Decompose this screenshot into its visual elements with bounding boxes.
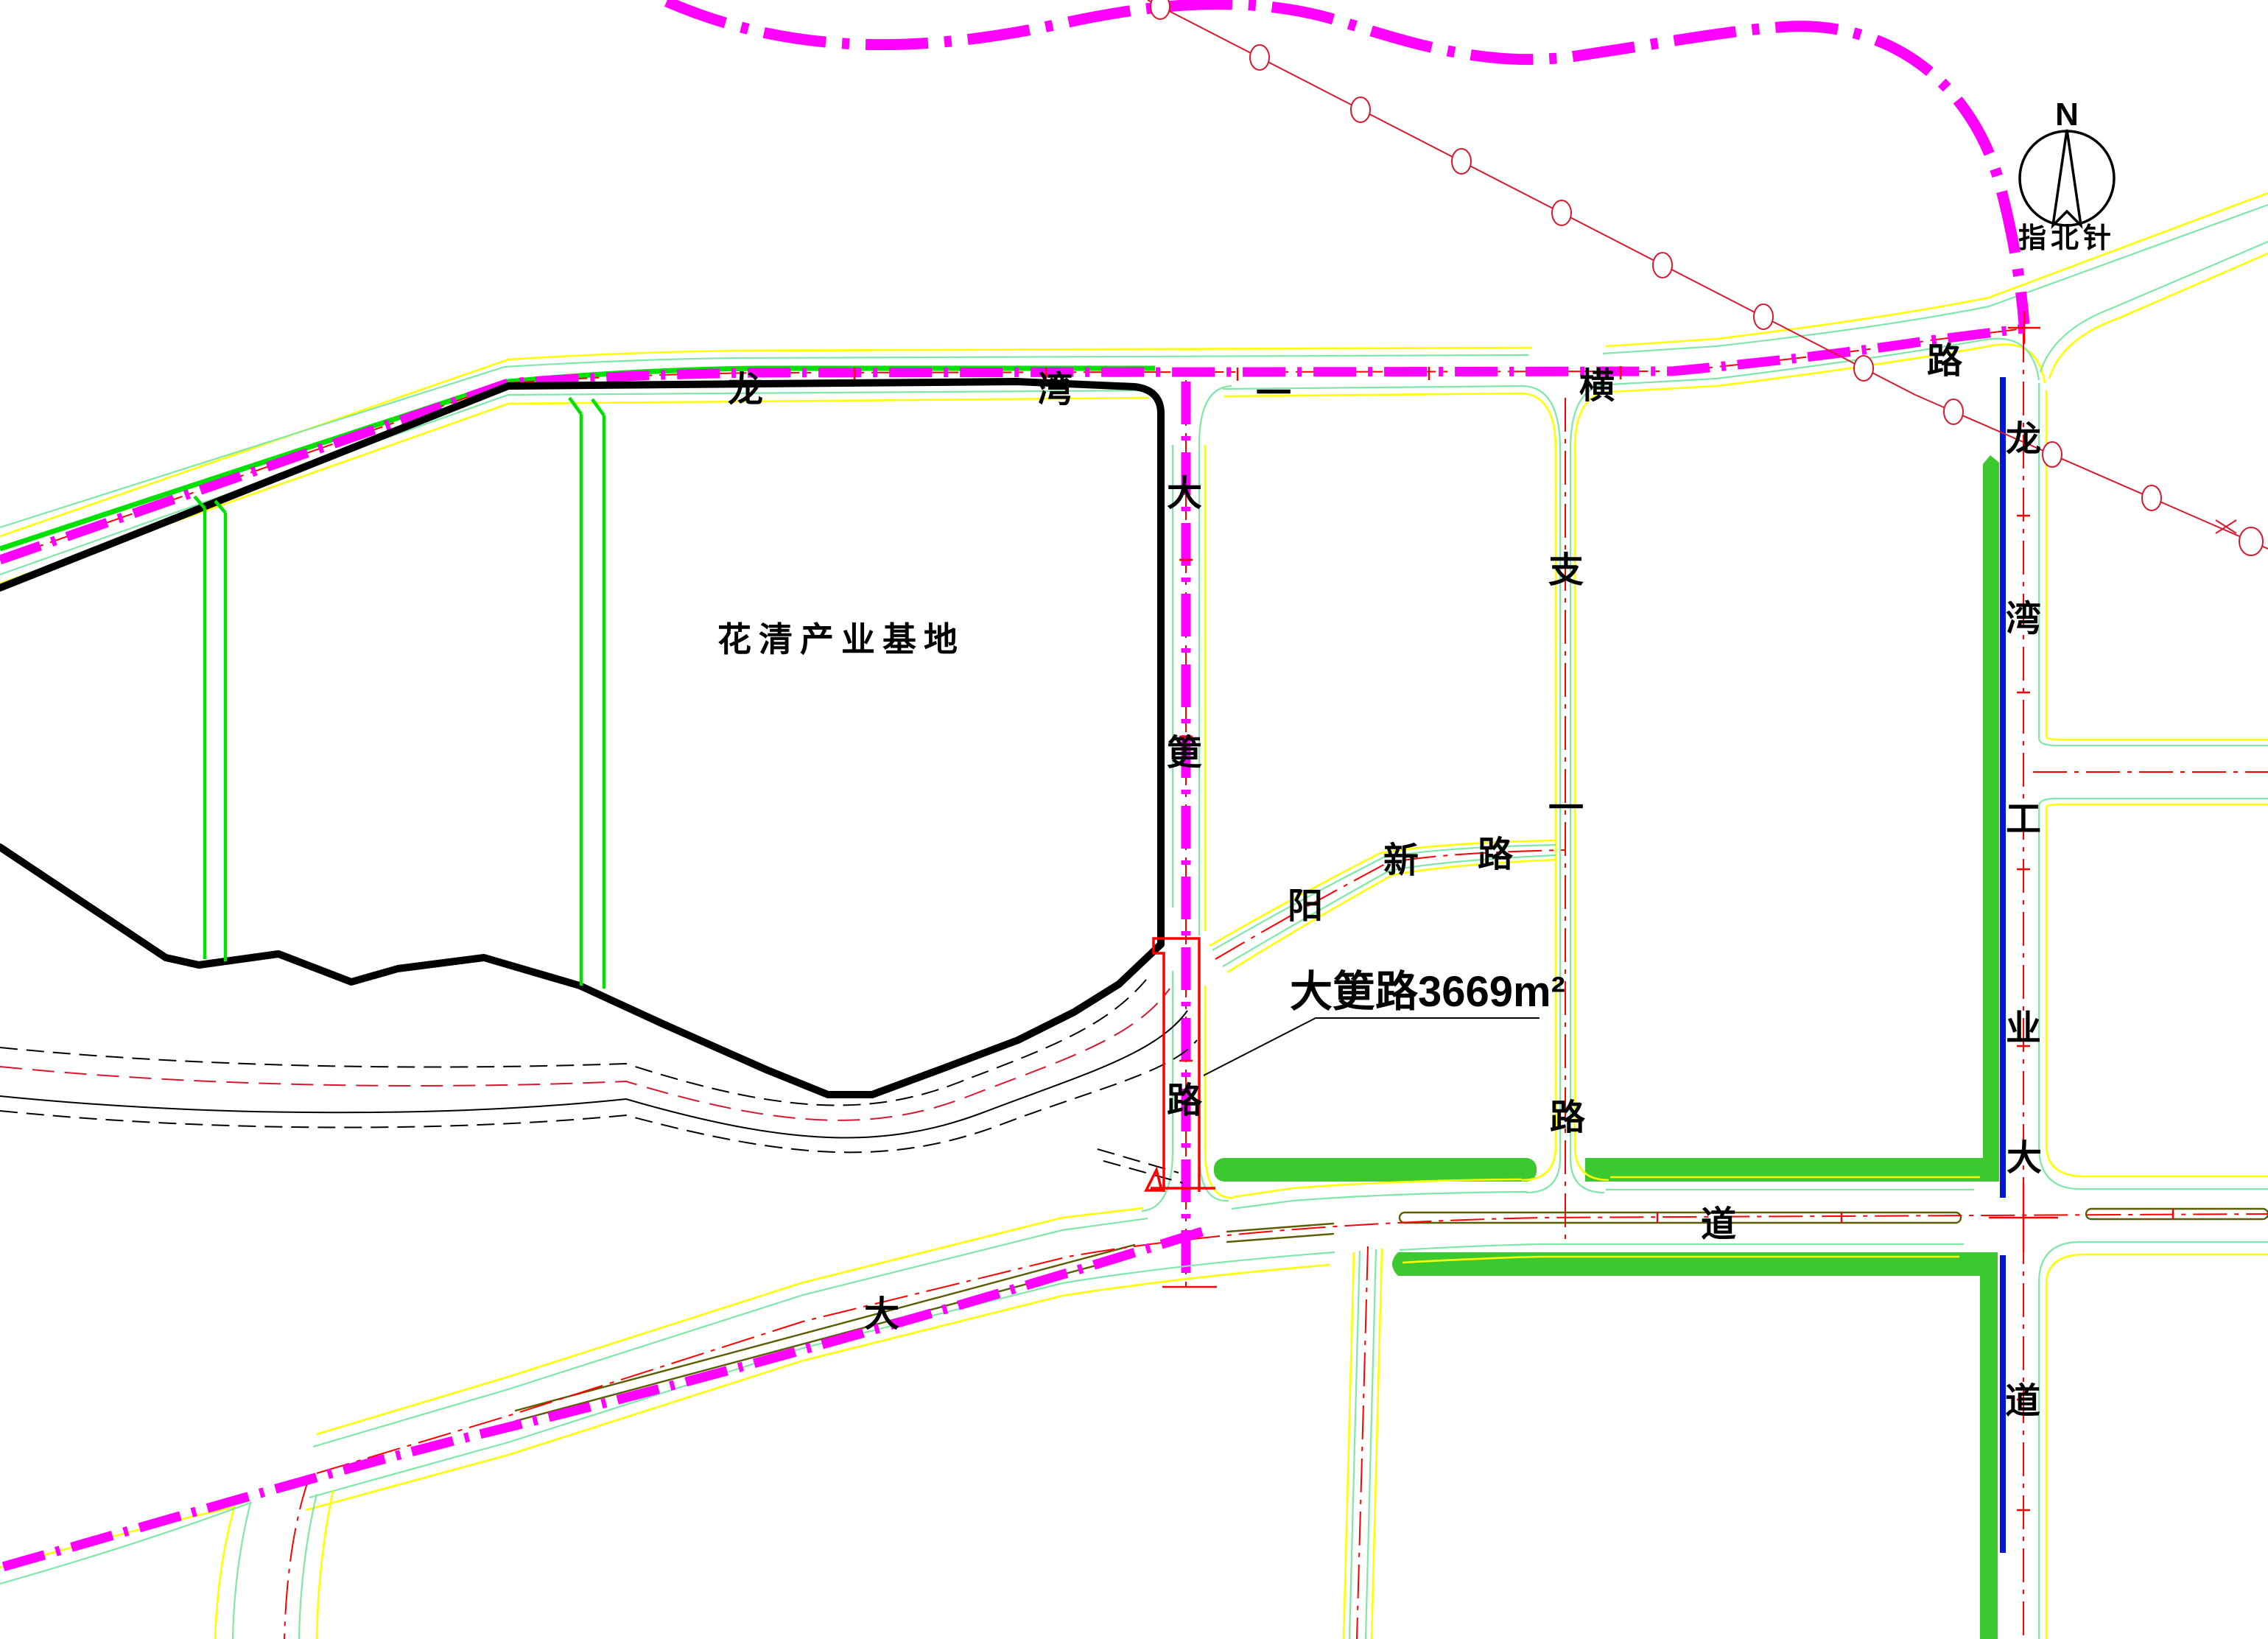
industrial-base-boundary [0, 382, 1161, 1095]
label-top-5: 路 [1927, 342, 1963, 381]
label-avenue-2: 湾 [2006, 600, 2041, 639]
site-label: 花清产业基地 [717, 620, 965, 659]
label-zhiyi-2: 一 [1548, 789, 1584, 828]
compass-needle-icon [2053, 130, 2081, 225]
planning-boundary-magenta [0, 1, 2040, 1568]
label-avenue-5: 大 [2007, 1139, 2042, 1178]
label-yangxin-2: 新 [1383, 841, 1419, 880]
compass-label: 指北针 [2018, 223, 2116, 254]
label-top-2: 湾 [1037, 371, 1072, 410]
boundary-southwest [0, 1232, 1202, 1568]
compass-north: N [2055, 96, 2079, 133]
label-dagang-2: 筻 [1167, 734, 1202, 773]
old-road-bundle [0, 980, 1197, 1183]
label-avenue-4: 业 [2006, 1009, 2041, 1048]
road-dagang-edges [1142, 380, 1233, 1286]
road-south-branch [1344, 1246, 1382, 1639]
road-avenue-edges [2003, 329, 2085, 1639]
survey-line [1148, 0, 2268, 555]
annotation-dagang-area: 大筻路3669m² [1204, 968, 1565, 1075]
label-yangxin-1: 阳 [1288, 887, 1323, 926]
label-dagang-1: 大 [1167, 474, 1202, 513]
label-zhiyi-1: 支 [1548, 551, 1584, 590]
map-canvas: 龙 湾 一 横 路 大 筻 路 支 一 路 阳 新 路 大 道 龙 湾 工 业 … [0, 0, 2268, 1639]
label-dagang-3: 路 [1167, 1081, 1203, 1120]
label-top-4: 横 [1579, 367, 1615, 406]
label-avenue-1: 龙 [2006, 420, 2041, 459]
label-avenue-6: 道 [2005, 1382, 2040, 1421]
annotation-text: 大筻路3669m² [1290, 968, 1565, 1016]
compass: N 指北针 [2018, 96, 2116, 254]
green-belts [1214, 455, 1999, 1639]
label-bottom-1: 大 [864, 1295, 899, 1334]
label-bottom-2: 道 [1701, 1205, 1736, 1244]
label-top-1: 龙 [728, 371, 763, 410]
construction-extent-box [1146, 938, 2058, 1287]
road-east-branch [2033, 740, 2268, 804]
label-top-3: 一 [1256, 374, 1291, 413]
boundary-north-curve [667, 1, 2024, 324]
road-southwest-exit [0, 1491, 333, 1639]
label-yangxin-3: 路 [1478, 835, 1514, 874]
label-avenue-3: 工 [2006, 800, 2041, 839]
planning-map: 龙 湾 一 横 路 大 筻 路 支 一 路 阳 新 路 大 道 龙 湾 工 业 … [0, 0, 2268, 1639]
label-zhiyi-3: 路 [1550, 1098, 1586, 1137]
